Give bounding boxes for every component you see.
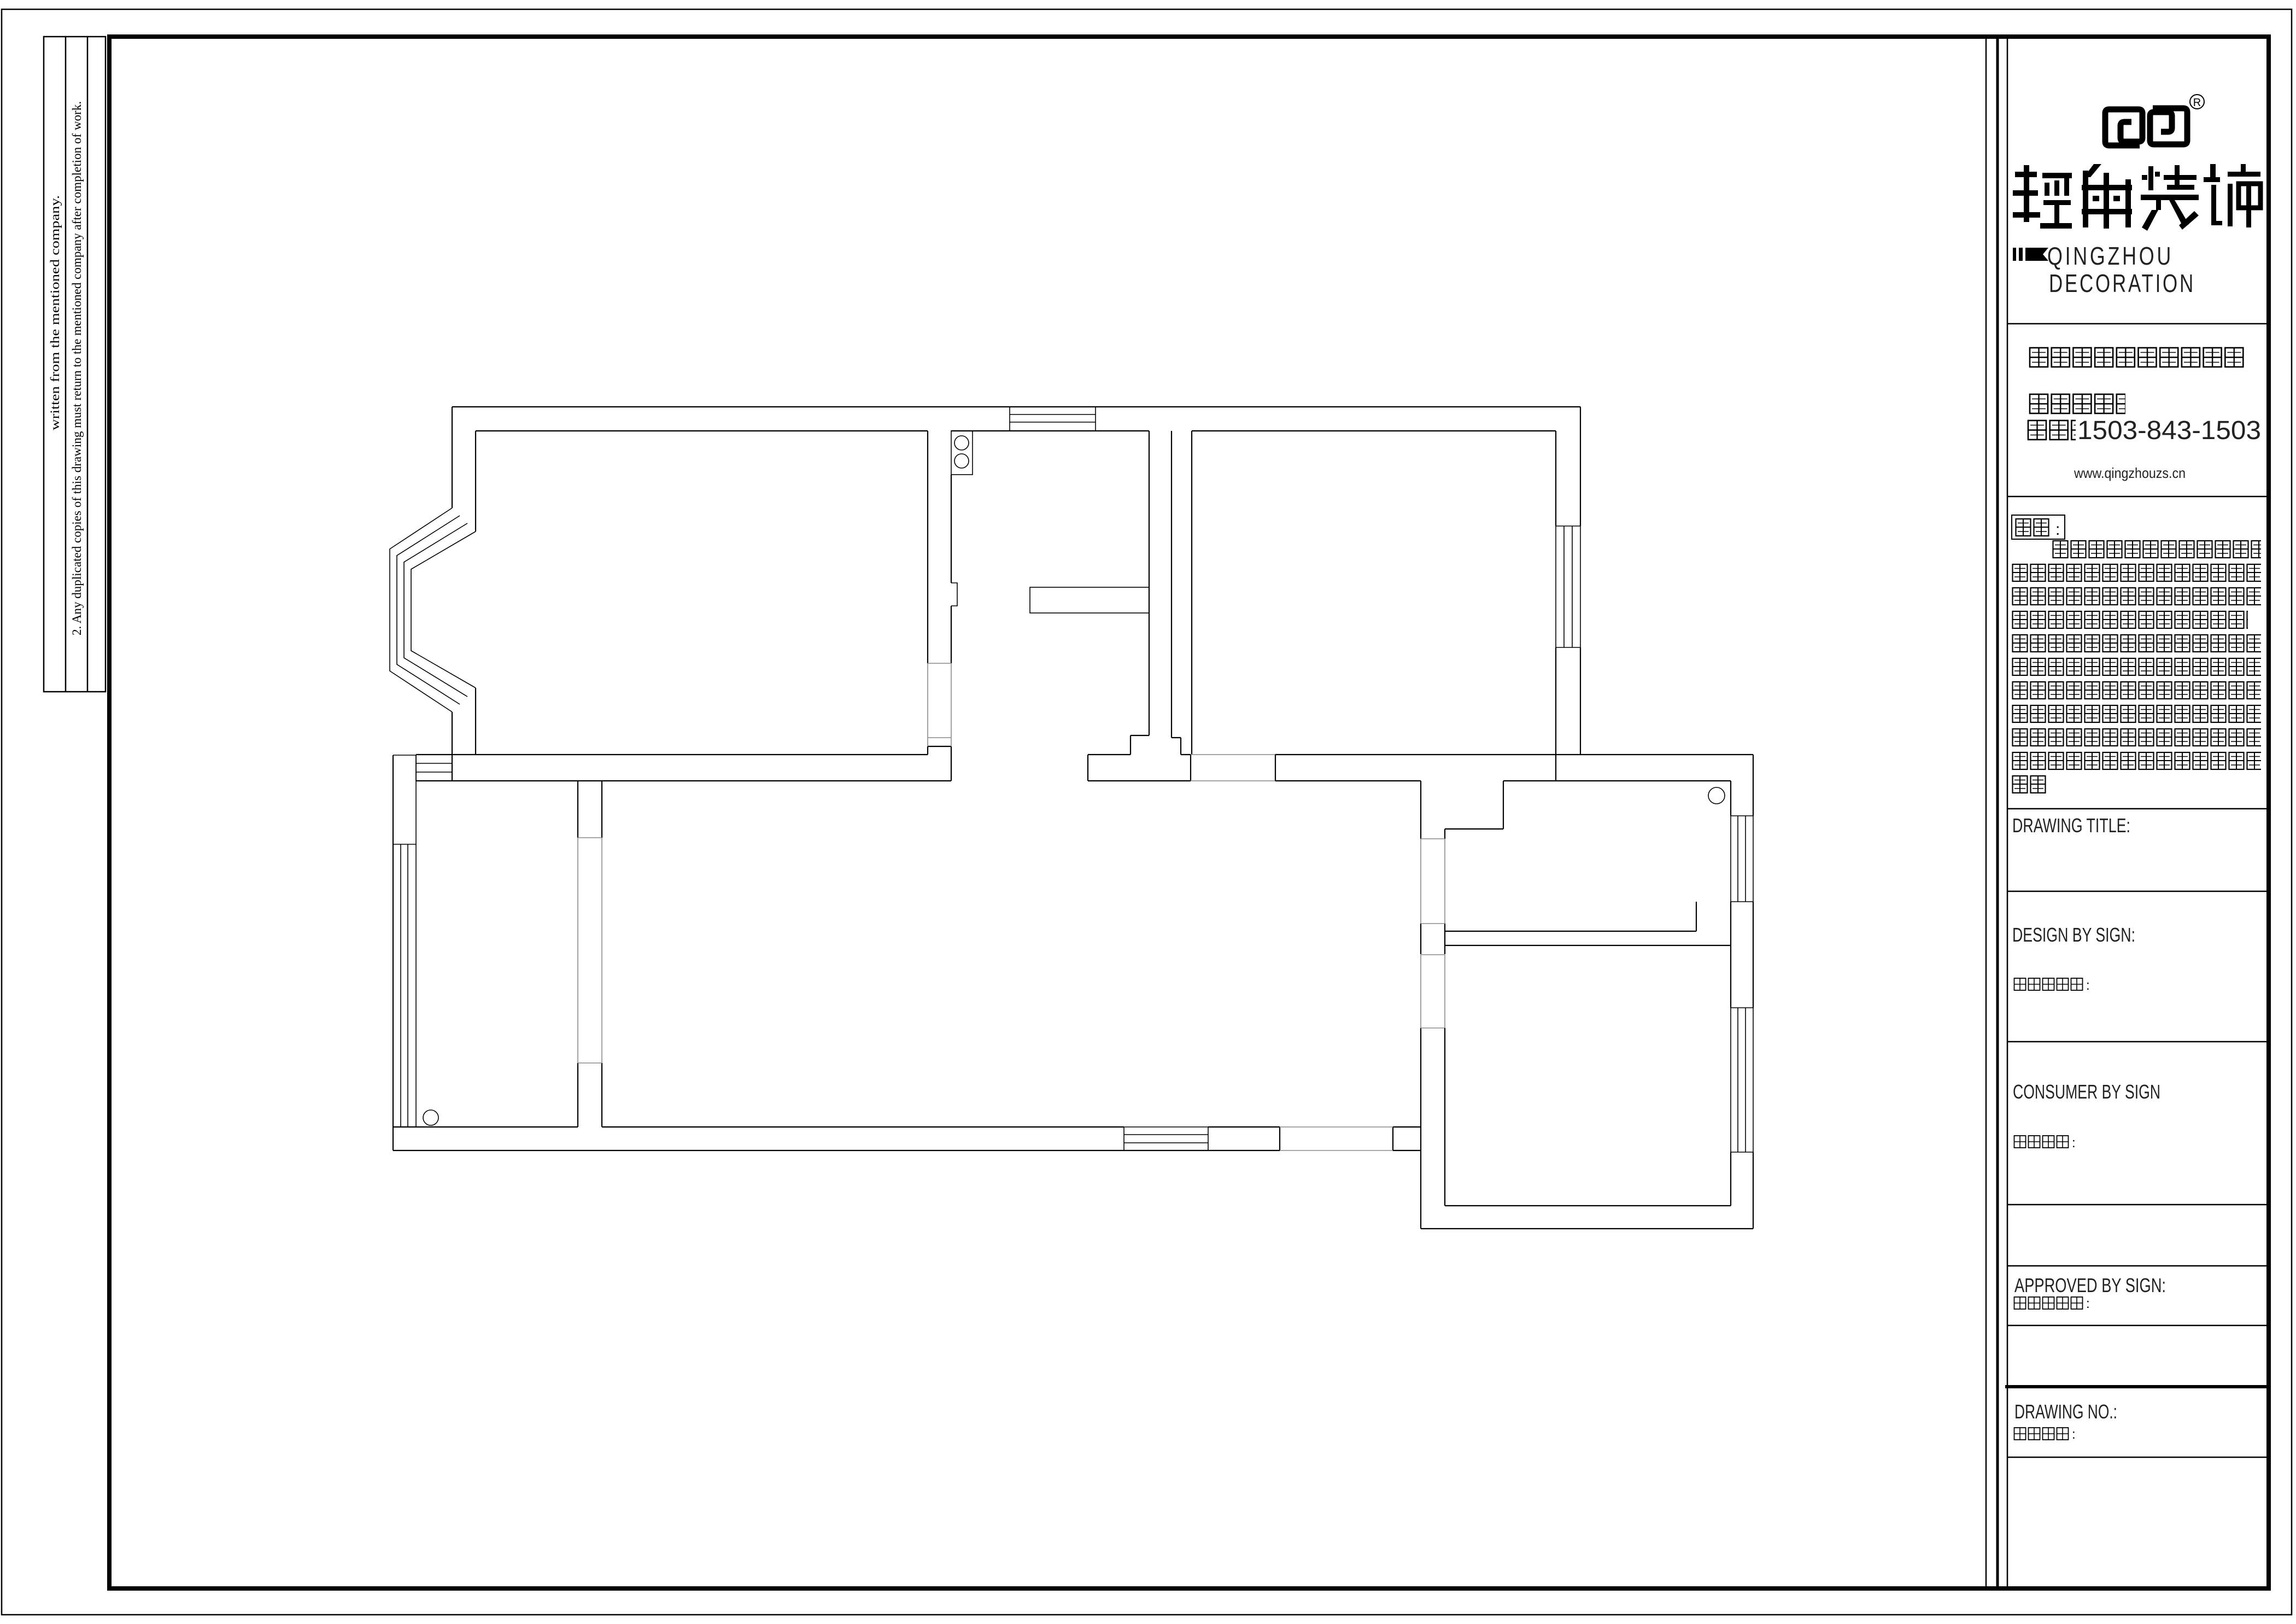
- svg-text::: :: [2072, 1136, 2076, 1150]
- svg-text::: :: [2086, 1296, 2090, 1311]
- svg-text:2. Any duplicated copies of th: 2. Any duplicated copies of this drawing…: [70, 101, 84, 635]
- svg-text::: :: [2086, 978, 2090, 993]
- svg-text:APPROVED BY SIGN:: APPROVED BY SIGN:: [2014, 1274, 2166, 1296]
- svg-text::: :: [2072, 1427, 2076, 1442]
- svg-text:DRAWING TITLE:: DRAWING TITLE:: [2012, 814, 2130, 837]
- svg-text:www.qingzhouzs.cn: www.qingzhouzs.cn: [2074, 465, 2186, 481]
- svg-text:DRAWING NO.:: DRAWING NO.:: [2014, 1400, 2117, 1423]
- svg-text:QINGZHOU: QINGZHOU: [2047, 242, 2174, 270]
- svg-text:DECORATION: DECORATION: [2049, 269, 2195, 297]
- svg-text:DESIGN BY SIGN:: DESIGN BY SIGN:: [2012, 924, 2135, 946]
- svg-text:CONSUMER BY SIGN: CONSUMER BY SIGN: [2013, 1080, 2160, 1103]
- svg-text:written from the mentioned com: written from the mentioned company.: [48, 195, 62, 430]
- svg-text::: :: [2055, 521, 2060, 539]
- svg-text:R: R: [2193, 97, 2201, 109]
- svg-text:1503-843-1503: 1503-843-1503: [2077, 416, 2261, 445]
